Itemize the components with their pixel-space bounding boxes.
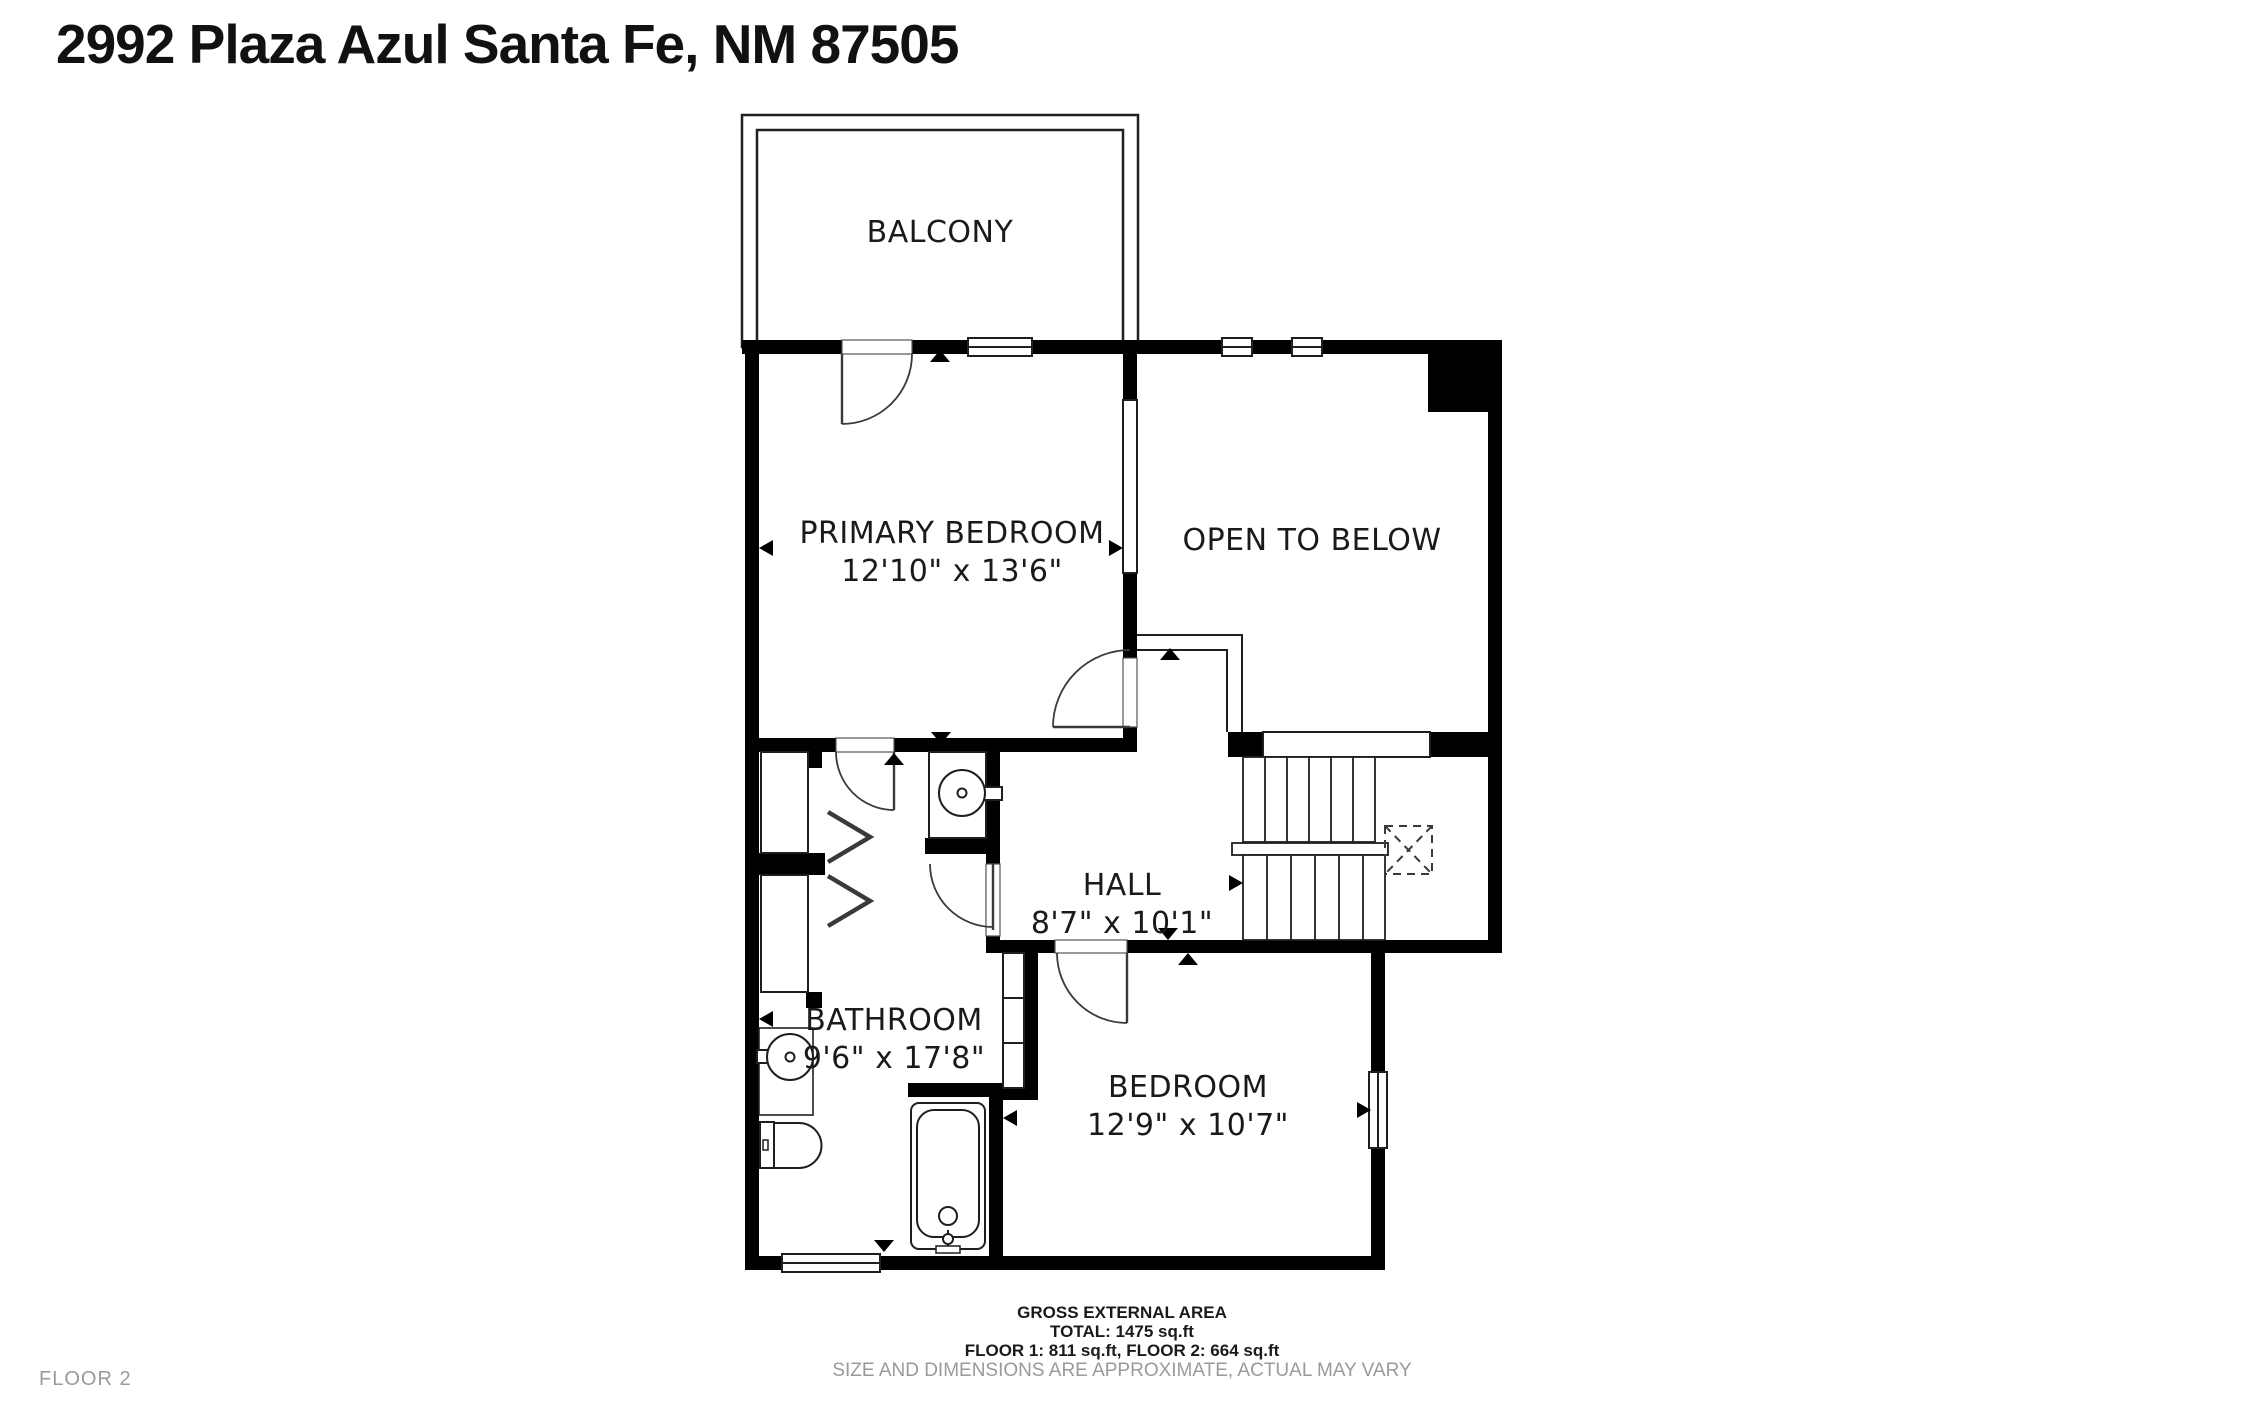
- room-label-primary-bedroom: PRIMARY BEDROOM: [799, 516, 1104, 551]
- room-label-hall: HALL: [1083, 868, 1162, 903]
- summary-floors: FLOOR 1: 811 sq.ft, FLOOR 2: 664 sq.ft: [832, 1341, 1411, 1360]
- room-dims-bedroom: 12'9" x 10'7": [1087, 1108, 1289, 1143]
- window-top-3: [1292, 338, 1322, 356]
- shelf-strip: [1003, 953, 1024, 1088]
- door-balcony: [842, 354, 912, 424]
- door-closet-corridor: [836, 752, 894, 810]
- floorplan-canvas: BALCONY PRIMARY BEDROOM 12'10" x 13'6" O…: [0, 0, 2245, 1402]
- area-summary: GROSS EXTERNAL AREA TOTAL: 1475 sq.ft FL…: [832, 1303, 1411, 1382]
- door-bedroom: [1057, 953, 1127, 1023]
- stairs-icon: [1232, 757, 1388, 940]
- door-hall: [930, 864, 993, 930]
- bathtub-icon: [911, 1103, 985, 1253]
- toilet-icon: [760, 1122, 822, 1168]
- room-label-open-to-below: OPEN TO BELOW: [1182, 523, 1441, 558]
- summary-disclaimer: SIZE AND DIMENSIONS ARE APPROXIMATE, ACT…: [832, 1360, 1411, 1382]
- window-top-1: [968, 338, 1032, 356]
- room-label-bathroom: BATHROOM: [805, 1003, 983, 1038]
- room-label-bedroom: BEDROOM: [1108, 1070, 1268, 1105]
- stair-void-marker: [1385, 826, 1432, 874]
- window-top-2: [1222, 338, 1252, 356]
- room-dims-primary-bedroom: 12'10" x 13'6": [841, 554, 1063, 589]
- railing: [1137, 635, 1430, 757]
- summary-heading: GROSS EXTERNAL AREA: [832, 1303, 1411, 1322]
- floor-label: FLOOR 2: [39, 1368, 132, 1391]
- bifold-closet-icon: [828, 812, 870, 926]
- window-bedroom: [1369, 1072, 1387, 1148]
- summary-total: TOTAL: 1475 sq.ft: [832, 1322, 1411, 1341]
- room-dims-hall: 8'7" x 10'1": [1031, 906, 1213, 941]
- stair-landing-rail: [1232, 843, 1388, 855]
- room-dims-bathroom: 9'6" x 17'8": [803, 1041, 985, 1076]
- room-label-balcony: BALCONY: [867, 215, 1014, 250]
- closet-box-2: [761, 875, 808, 992]
- closet-box-1: [761, 752, 808, 853]
- window-bathroom: [782, 1254, 880, 1272]
- half-wall: [1123, 400, 1137, 573]
- door-primary-bedroom: [1053, 650, 1130, 727]
